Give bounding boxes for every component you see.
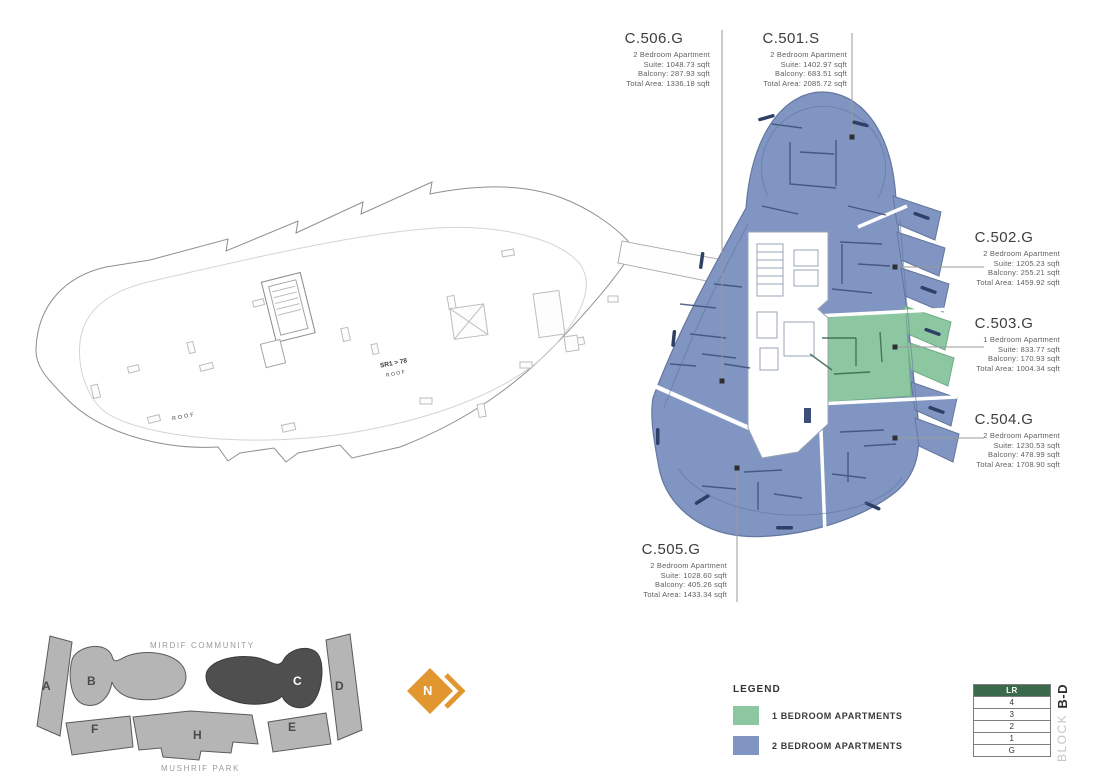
unit-balcony-area: Balcony: 405.26 sqft (615, 580, 727, 590)
unit-suite-area: Suite: 1048.73 sqft (598, 60, 710, 70)
legend-swatch-1bed-icon (733, 706, 759, 725)
unit-id: C.501.S (735, 30, 847, 47)
unit-id: C.502.G (948, 229, 1060, 246)
block-vertical-label: BLOCK B-D (1053, 684, 1071, 762)
site-block-c[interactable] (206, 648, 322, 707)
legend-label-1bed: 1 BEDROOM APARTMENTS (772, 711, 903, 721)
unit-suite-area: Suite: 833.77 sqft (948, 345, 1060, 355)
building-core (748, 232, 828, 458)
floor-cell[interactable]: 4 (974, 697, 1051, 709)
unit-balcony-area: Balcony: 255.21 sqft (948, 268, 1060, 278)
unit-label-c506g: C.506.G 2 Bedroom Apartment Suite: 1048.… (598, 30, 710, 88)
unit-suite-area: Suite: 1205.23 sqft (948, 259, 1060, 269)
unit-suite-area: Suite: 1028.60 sqft (615, 571, 727, 581)
site-block-f-label[interactable]: F (91, 722, 98, 736)
floor-cell[interactable]: 3 (974, 709, 1051, 721)
unit-suite-area: Suite: 1230.53 sqft (948, 441, 1060, 451)
unit-suite-area: Suite: 1402.97 sqft (735, 60, 847, 70)
unit-label-c503g: C.503.G 1 Bedroom Apartment Suite: 833.7… (948, 315, 1060, 373)
floor-row-g[interactable]: G (974, 745, 1051, 757)
site-block-a-label[interactable]: A (42, 679, 51, 693)
unit-type: 1 Bedroom Apartment (948, 335, 1060, 345)
site-block-e-label[interactable]: E (288, 720, 296, 734)
unit-id: C.506.G (598, 30, 710, 47)
unit-total-area: Total Area: 1708.90 sqft (948, 460, 1060, 470)
unit-total-area: Total Area: 1336.18 sqft (598, 79, 710, 89)
unit-label-c505g: C.505.G 2 Bedroom Apartment Suite: 1028.… (615, 541, 727, 599)
legend-title: LEGEND (733, 684, 903, 695)
site-plan-graphic (0, 0, 1097, 784)
legend-item-2bed: 2 BEDROOM APARTMENTS (733, 736, 903, 755)
north-letter: N (423, 683, 432, 698)
floor-row-2[interactable]: 2 (974, 721, 1051, 733)
unit-type: 2 Bedroom Apartment (948, 431, 1060, 441)
legend: LEGEND 1 BEDROOM APARTMENTS 2 BEDROOM AP… (733, 684, 903, 755)
north-arrow (407, 668, 462, 714)
legend-label-2bed: 2 BEDROOM APARTMENTS (772, 741, 903, 751)
mushrif-park-label: MUSHRIF PARK (161, 764, 240, 773)
unit-id: C.505.G (615, 541, 727, 558)
unit-total-area: Total Area: 2085.72 sqft (735, 79, 847, 89)
mirdif-community-label: MIRDIF COMMUNITY (150, 641, 255, 650)
floor-cell[interactable]: 1 (974, 733, 1051, 745)
legend-swatch-2bed-icon (733, 736, 759, 755)
unit-type: 2 Bedroom Apartment (598, 50, 710, 60)
unit-balcony-area: Balcony: 287.93 sqft (598, 69, 710, 79)
site-block-f[interactable] (66, 716, 133, 755)
unit-type: 2 Bedroom Apartment (735, 50, 847, 60)
unit-label-c502g: C.502.G 2 Bedroom Apartment Suite: 1205.… (948, 229, 1060, 287)
unit-id: C.504.G (948, 411, 1060, 428)
site-block-e[interactable] (268, 713, 331, 752)
floor-row-lr[interactable]: LR (974, 685, 1051, 697)
block-range: B-D (1055, 684, 1070, 709)
floor-selector: LR 4 3 2 1 G (973, 684, 1051, 757)
unit-balcony-area: Balcony: 170.93 sqft (948, 354, 1060, 364)
floor-row-1[interactable]: 1 (974, 733, 1051, 745)
floor-cell[interactable]: 2 (974, 721, 1051, 733)
floor-cell[interactable]: LR (974, 685, 1051, 697)
floor-cell[interactable]: G (974, 745, 1051, 757)
unit-label-c504g: C.504.G 2 Bedroom Apartment Suite: 1230.… (948, 411, 1060, 469)
legend-item-1bed: 1 BEDROOM APARTMENTS (733, 706, 903, 725)
unit-balcony-area: Balcony: 683.51 sqft (735, 69, 847, 79)
site-block-d[interactable] (326, 634, 362, 740)
unit-total-area: Total Area: 1004.34 sqft (948, 364, 1060, 374)
unit-total-area: Total Area: 1433.34 sqft (615, 590, 727, 600)
site-block-c-label[interactable]: C (293, 674, 302, 688)
unit-id: C.503.G (948, 315, 1060, 332)
roof-hatch-box (450, 304, 488, 339)
floorplan-page: C.506.G 2 Bedroom Apartment Suite: 1048.… (0, 0, 1097, 784)
floor-row-3[interactable]: 3 (974, 709, 1051, 721)
unit-total-area: Total Area: 1459.92 sqft (948, 278, 1060, 288)
unit-type: 2 Bedroom Apartment (615, 561, 727, 571)
unit-label-c501s: C.501.S 2 Bedroom Apartment Suite: 1402.… (735, 30, 847, 88)
site-block-d-label[interactable]: D (335, 679, 344, 693)
unit-type: 2 Bedroom Apartment (948, 249, 1060, 259)
block-word: BLOCK (1055, 714, 1069, 762)
floor-row-4[interactable]: 4 (974, 697, 1051, 709)
site-block-h-label[interactable]: H (193, 728, 202, 742)
unit-balcony-area: Balcony: 478.99 sqft (948, 450, 1060, 460)
site-block-b-label[interactable]: B (87, 674, 96, 688)
